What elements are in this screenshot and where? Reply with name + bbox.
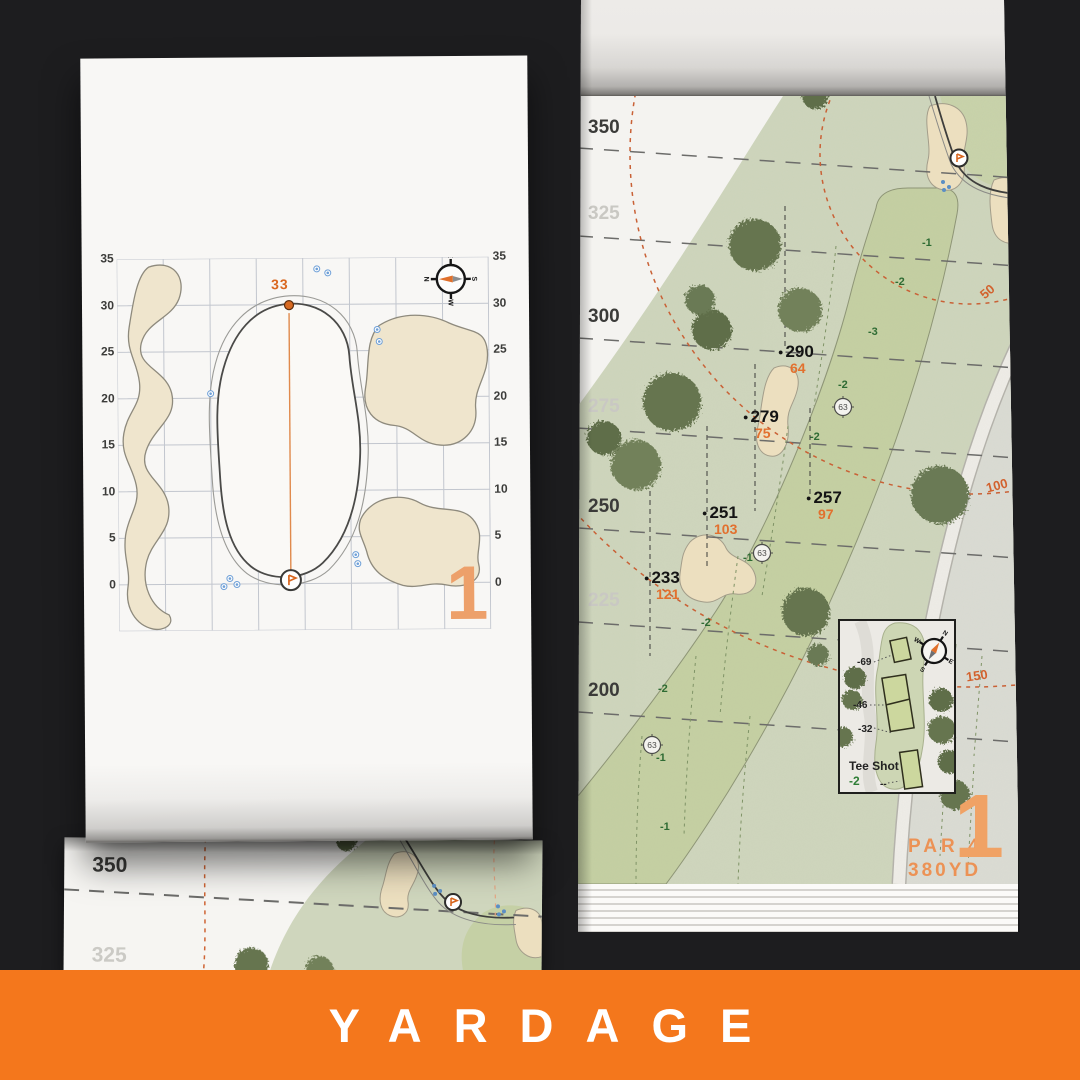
carry-distance: 279 [743,407,779,427]
axis-label: 30 [86,298,114,312]
axis-label: 15 [87,437,115,451]
compass-icon: N E S W [422,257,477,307]
distance-label: 350 [588,117,620,139]
axis-label: 15 [494,434,522,448]
axis-label: 30 [493,295,521,309]
distance-label: 325 [588,203,620,225]
distance-label: 225 [588,590,620,612]
elevation-label: -1 [743,552,753,564]
axis-label: 0 [495,574,523,588]
axis-label: 5 [495,527,523,541]
elevation-label: -2 [658,683,668,695]
svg-text:E: E [446,257,453,258]
under-distance-label: 325 [92,944,127,968]
green-detail-map: N E S W [117,257,492,632]
axis-label: 35 [493,249,521,263]
distance-label: 275 [588,396,620,418]
elevation-label: -2 [701,617,711,629]
arc-yardage-label: 50 [977,281,998,302]
elevation-label: -2 [810,431,820,443]
axis-label: 10 [87,484,115,498]
svg-text:S: S [470,276,477,281]
carry-distance: 251 [702,503,738,523]
right-book-page: 63 63 63 [578,0,1018,932]
axis-labels-left: 35302520151050 [86,259,117,631]
arc-yardage-label: 150 [965,667,989,685]
under-page-map [64,837,543,973]
pin-distance-label: 33 [260,276,300,292]
elevation-label: -1 [656,752,666,764]
axis-label: 25 [86,344,114,358]
to-green-distance: 97 [818,506,834,522]
yardage-book-mockup: { "banner": { "title": "YARDAGE", "bg_co… [0,0,1080,1080]
elevation-label: -2 [895,276,905,288]
left-book-top-page: N E S W 35302520151050 35302520151050 33… [80,55,532,842]
carry-distance: 233 [644,568,680,588]
to-green-distance: 121 [656,586,679,602]
axis-label: 5 [88,530,116,544]
svg-text:W: W [446,299,453,306]
arc-dashed [204,838,206,971]
arc-yardage-label: 100 [984,475,1009,495]
page-curl [85,761,533,842]
axis-label: 25 [493,341,521,355]
stacked-page-edges [578,884,1018,932]
elevation-label: -3 [868,326,878,338]
left-book-under-page: 350 325 [64,837,543,973]
distance-label: 250 [588,496,620,518]
distance-label: 300 [588,306,620,328]
carry-distance: 257 [806,488,842,508]
banner-title: YARDAGE [297,998,784,1053]
svg-text:N: N [422,277,429,282]
axis-label: 35 [86,251,114,265]
to-green-distance: 103 [714,521,737,537]
axis-label: 20 [87,391,115,405]
to-green-distance: 64 [790,360,806,376]
elevation-label: -2 [838,379,848,391]
hole-map-labels: PAR 4 380YD 1 35032530027525022520050100… [578,0,1018,932]
carry-distance: 290 [778,342,814,362]
axis-label: 0 [88,577,116,591]
axis-label: 10 [494,481,522,495]
axis-label: 20 [494,388,522,402]
hole-number: 1 [954,782,1004,872]
elevation-label: -1 [922,237,932,249]
yardage-banner: YARDAGE [0,970,1080,1080]
spine-shadow [578,0,592,932]
under-distance-label: 350 [92,854,127,878]
to-green-distance: 75 [755,425,771,441]
hole-number: 1 [446,556,489,632]
pin-dot [284,301,293,310]
green-detail-svg: N E S W [117,257,492,632]
axis-labels-right: 35302520151050 [493,257,524,629]
distance-label: 200 [588,680,620,702]
elevation-label: -1 [660,821,670,833]
